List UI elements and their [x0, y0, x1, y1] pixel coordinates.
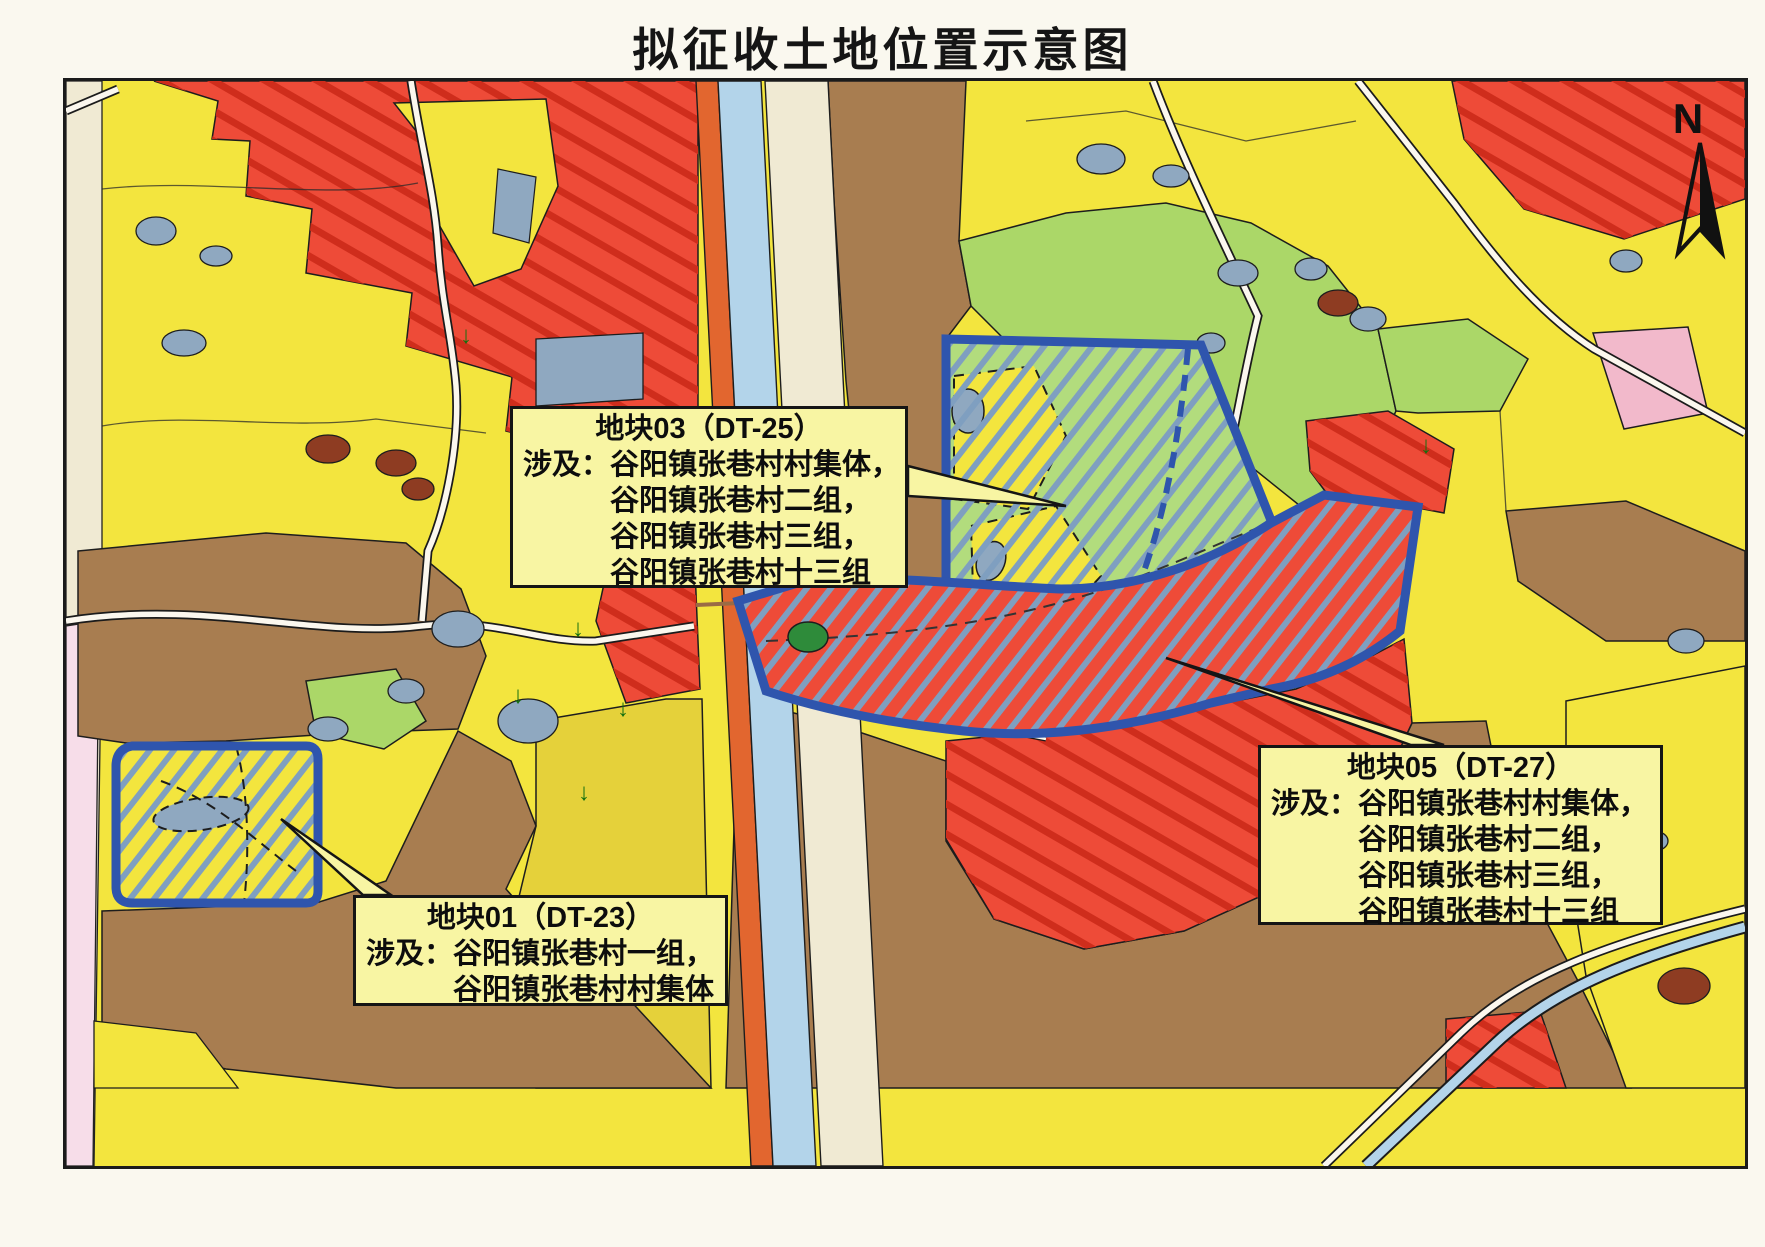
- callout-dt25-heading: 地块03（DT-25）: [523, 411, 895, 447]
- callout-dt27: 地块05（DT-27） 涉及： 谷阳镇张巷村村集体， 谷阳镇张巷村二组， 谷阳镇…: [1258, 745, 1663, 925]
- callout-dt25: 地块03（DT-25） 涉及： 谷阳镇张巷村村集体， 谷阳镇张巷村二组， 谷阳镇…: [510, 406, 908, 588]
- callout-dt23-involve-label: 涉及：: [366, 936, 453, 1008]
- page: { "title": "拟征收土地位置示意图", "compass": { "l…: [0, 0, 1765, 1247]
- map-frame: ↓ ↓ ↓ ↓ ↓ ↓ ↓ N 地块03（DT-25） 涉及： 谷阳镇张巷村村集…: [63, 78, 1748, 1169]
- svg-text:↓: ↓: [460, 322, 472, 349]
- callout-dt23-lines: 谷阳镇张巷村一组， 谷阳镇张巷村村集体: [453, 936, 714, 1008]
- callout-dt27-lines: 谷阳镇张巷村村集体， 谷阳镇张巷村二组， 谷阳镇张巷村三组， 谷阳镇张巷村十三组: [1358, 786, 1648, 930]
- north-label: N: [1673, 95, 1703, 142]
- svg-text:↓: ↓: [578, 779, 590, 806]
- callout-dt27-involve-label: 涉及：: [1271, 786, 1358, 930]
- callout-dt23-heading: 地块01（DT-23）: [366, 900, 715, 936]
- callout-dt25-involve-label: 涉及：: [523, 447, 610, 591]
- callout-dt23: 地块01（DT-23） 涉及： 谷阳镇张巷村一组， 谷阳镇张巷村村集体: [353, 895, 728, 1006]
- map-canvas: ↓ ↓ ↓ ↓ ↓ ↓ ↓ N: [66, 81, 1745, 1166]
- callout-dt27-heading: 地块05（DT-27）: [1271, 750, 1650, 786]
- dark-green-blob: [788, 622, 828, 652]
- page-title: 拟征收土地位置示意图: [0, 14, 1765, 80]
- svg-text:↓: ↓: [617, 695, 629, 722]
- callout-dt25-lines: 谷阳镇张巷村村集体， 谷阳镇张巷村二组， 谷阳镇张巷村三组， 谷阳镇张巷村十三组: [610, 447, 900, 591]
- svg-text:↓: ↓: [1420, 432, 1432, 459]
- svg-text:↓: ↓: [512, 682, 524, 709]
- svg-text:↓: ↓: [572, 615, 584, 642]
